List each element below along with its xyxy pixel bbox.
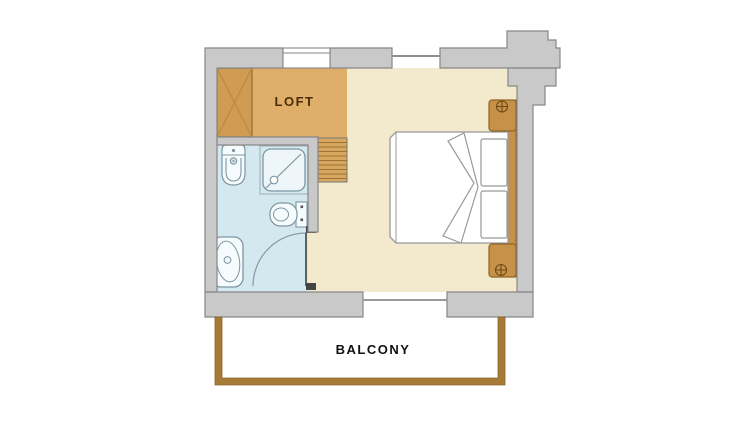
nightstand-top xyxy=(489,100,516,131)
floor-plan: LOFT BALCONY xyxy=(0,0,754,435)
loft-stairs xyxy=(318,138,347,182)
tub-drain-icon xyxy=(224,257,231,264)
nightstand-bottom xyxy=(489,244,516,277)
wall-top-middle xyxy=(330,48,392,68)
wall-bottom-right xyxy=(447,292,533,317)
bidet xyxy=(222,145,245,185)
toilet xyxy=(270,202,307,227)
shower-drain-icon xyxy=(270,176,278,184)
pillow xyxy=(481,139,507,186)
toilet-bowl xyxy=(270,203,297,226)
shower xyxy=(260,146,308,194)
lamp-icon xyxy=(496,265,507,276)
wall-bottom-left xyxy=(205,292,363,317)
loft-room-label: LOFT xyxy=(252,94,337,109)
lamp-icon xyxy=(497,101,508,112)
door-jamb xyxy=(306,283,316,290)
wall-top-right-pillar xyxy=(440,31,560,68)
wardrobe xyxy=(217,68,252,137)
pillow xyxy=(481,191,507,238)
balcony-room-label: BALCONY xyxy=(313,342,433,357)
window xyxy=(283,48,330,68)
